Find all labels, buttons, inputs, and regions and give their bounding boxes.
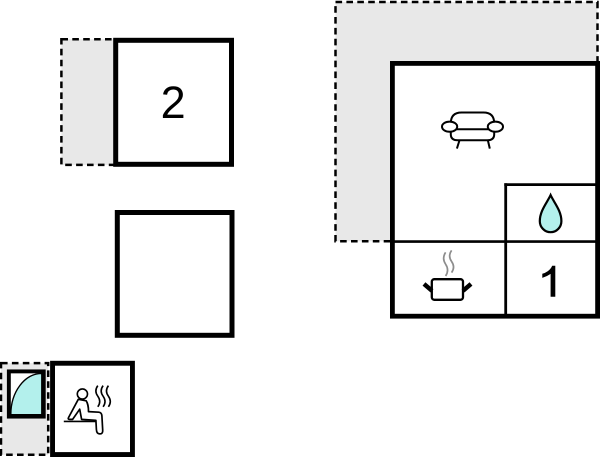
svg-text:2: 2 [161,77,186,128]
